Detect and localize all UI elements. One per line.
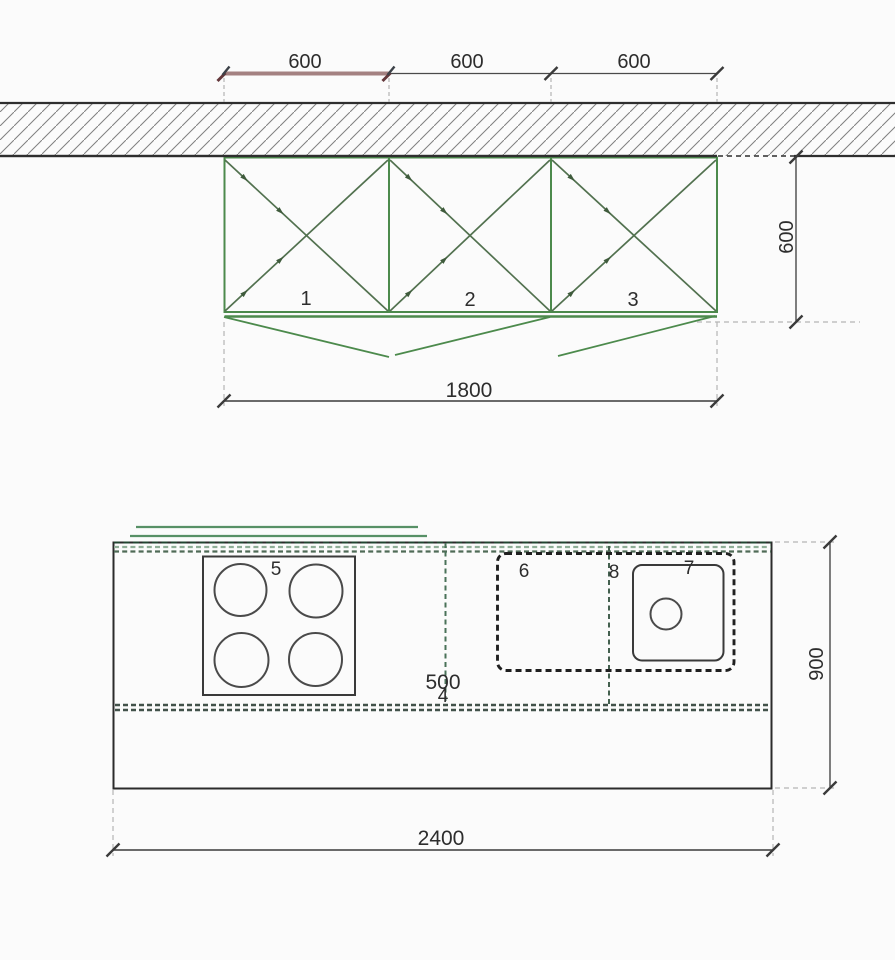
svg-text:1800: 1800: [446, 379, 493, 402]
svg-text:2: 2: [464, 289, 475, 311]
svg-text:600: 600: [776, 220, 798, 253]
svg-text:6: 6: [519, 561, 530, 582]
svg-text:600: 600: [617, 51, 650, 73]
svg-text:600: 600: [288, 51, 321, 73]
svg-text:900: 900: [806, 647, 828, 680]
svg-text:600: 600: [450, 51, 483, 73]
svg-text:2400: 2400: [418, 827, 465, 850]
svg-text:4: 4: [438, 686, 449, 707]
svg-text:5: 5: [271, 559, 282, 580]
svg-text:7: 7: [684, 558, 695, 579]
svg-text:8: 8: [609, 562, 620, 583]
svg-text:3: 3: [627, 289, 638, 311]
svg-text:1: 1: [300, 288, 311, 310]
